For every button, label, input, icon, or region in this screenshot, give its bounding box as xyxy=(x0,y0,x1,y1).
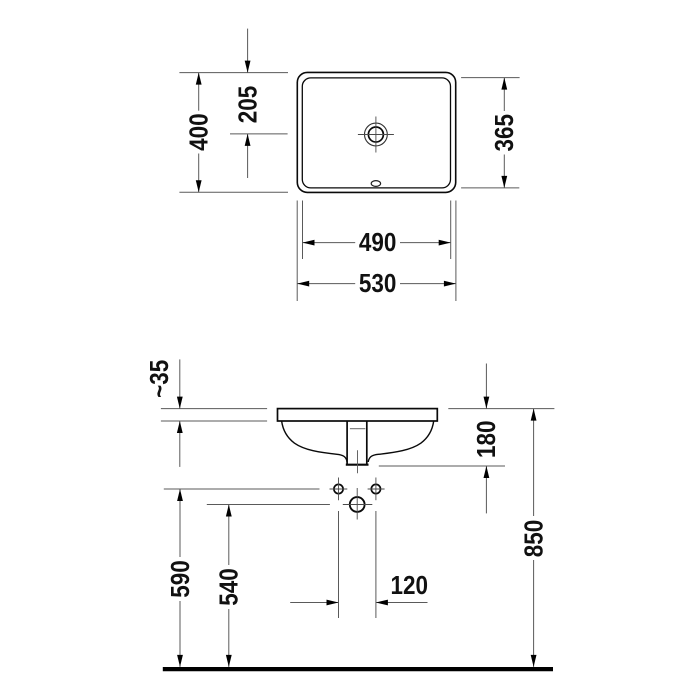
svg-text:365: 365 xyxy=(491,114,520,151)
svg-text:180: 180 xyxy=(473,420,502,457)
svg-text:490: 490 xyxy=(359,229,396,258)
svg-text:120: 120 xyxy=(390,571,427,600)
svg-text:205: 205 xyxy=(234,86,263,123)
svg-text:540: 540 xyxy=(215,568,244,605)
svg-text:~35: ~35 xyxy=(146,360,175,398)
svg-text:850: 850 xyxy=(520,520,549,557)
svg-text:530: 530 xyxy=(359,270,396,299)
svg-text:400: 400 xyxy=(185,113,214,150)
svg-text:590: 590 xyxy=(166,560,195,597)
